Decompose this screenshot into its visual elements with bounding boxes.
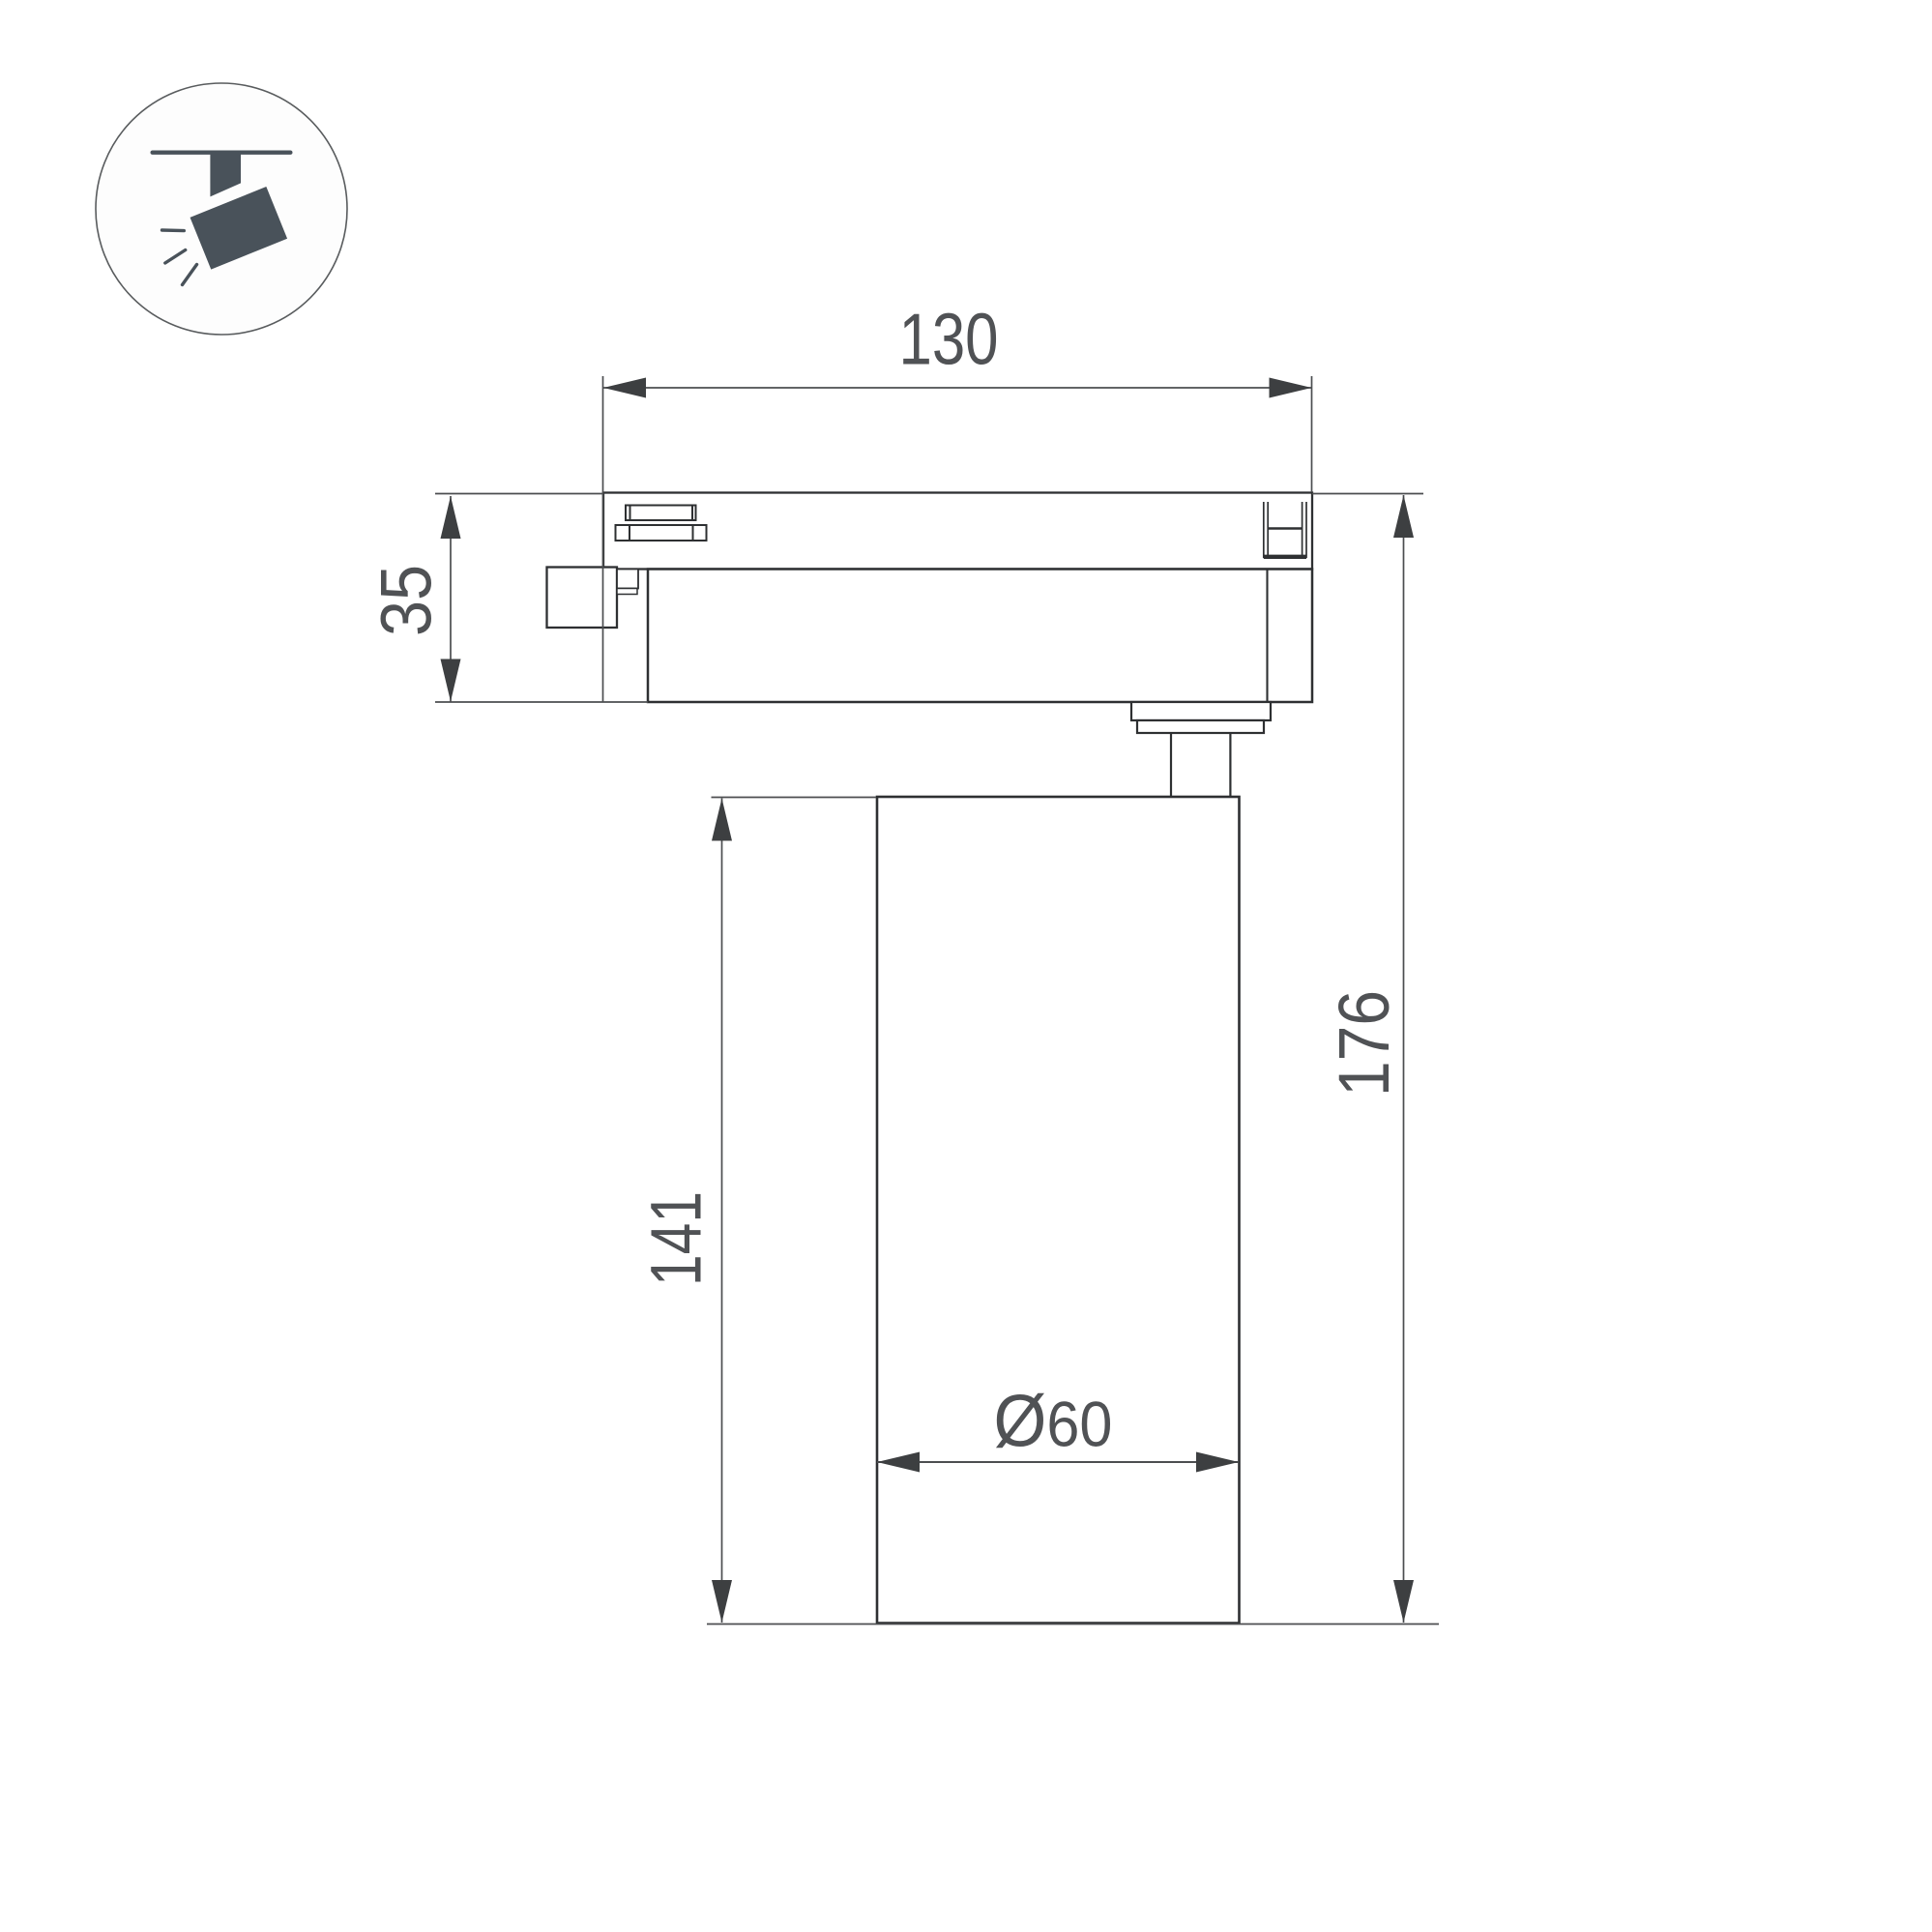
svg-text:141: 141 (636, 1191, 717, 1286)
svg-text:35: 35 (366, 565, 447, 636)
svg-text:130: 130 (899, 299, 999, 380)
svg-text:176: 176 (1324, 990, 1404, 1097)
svg-text:Ø60: Ø60 (994, 1381, 1113, 1463)
